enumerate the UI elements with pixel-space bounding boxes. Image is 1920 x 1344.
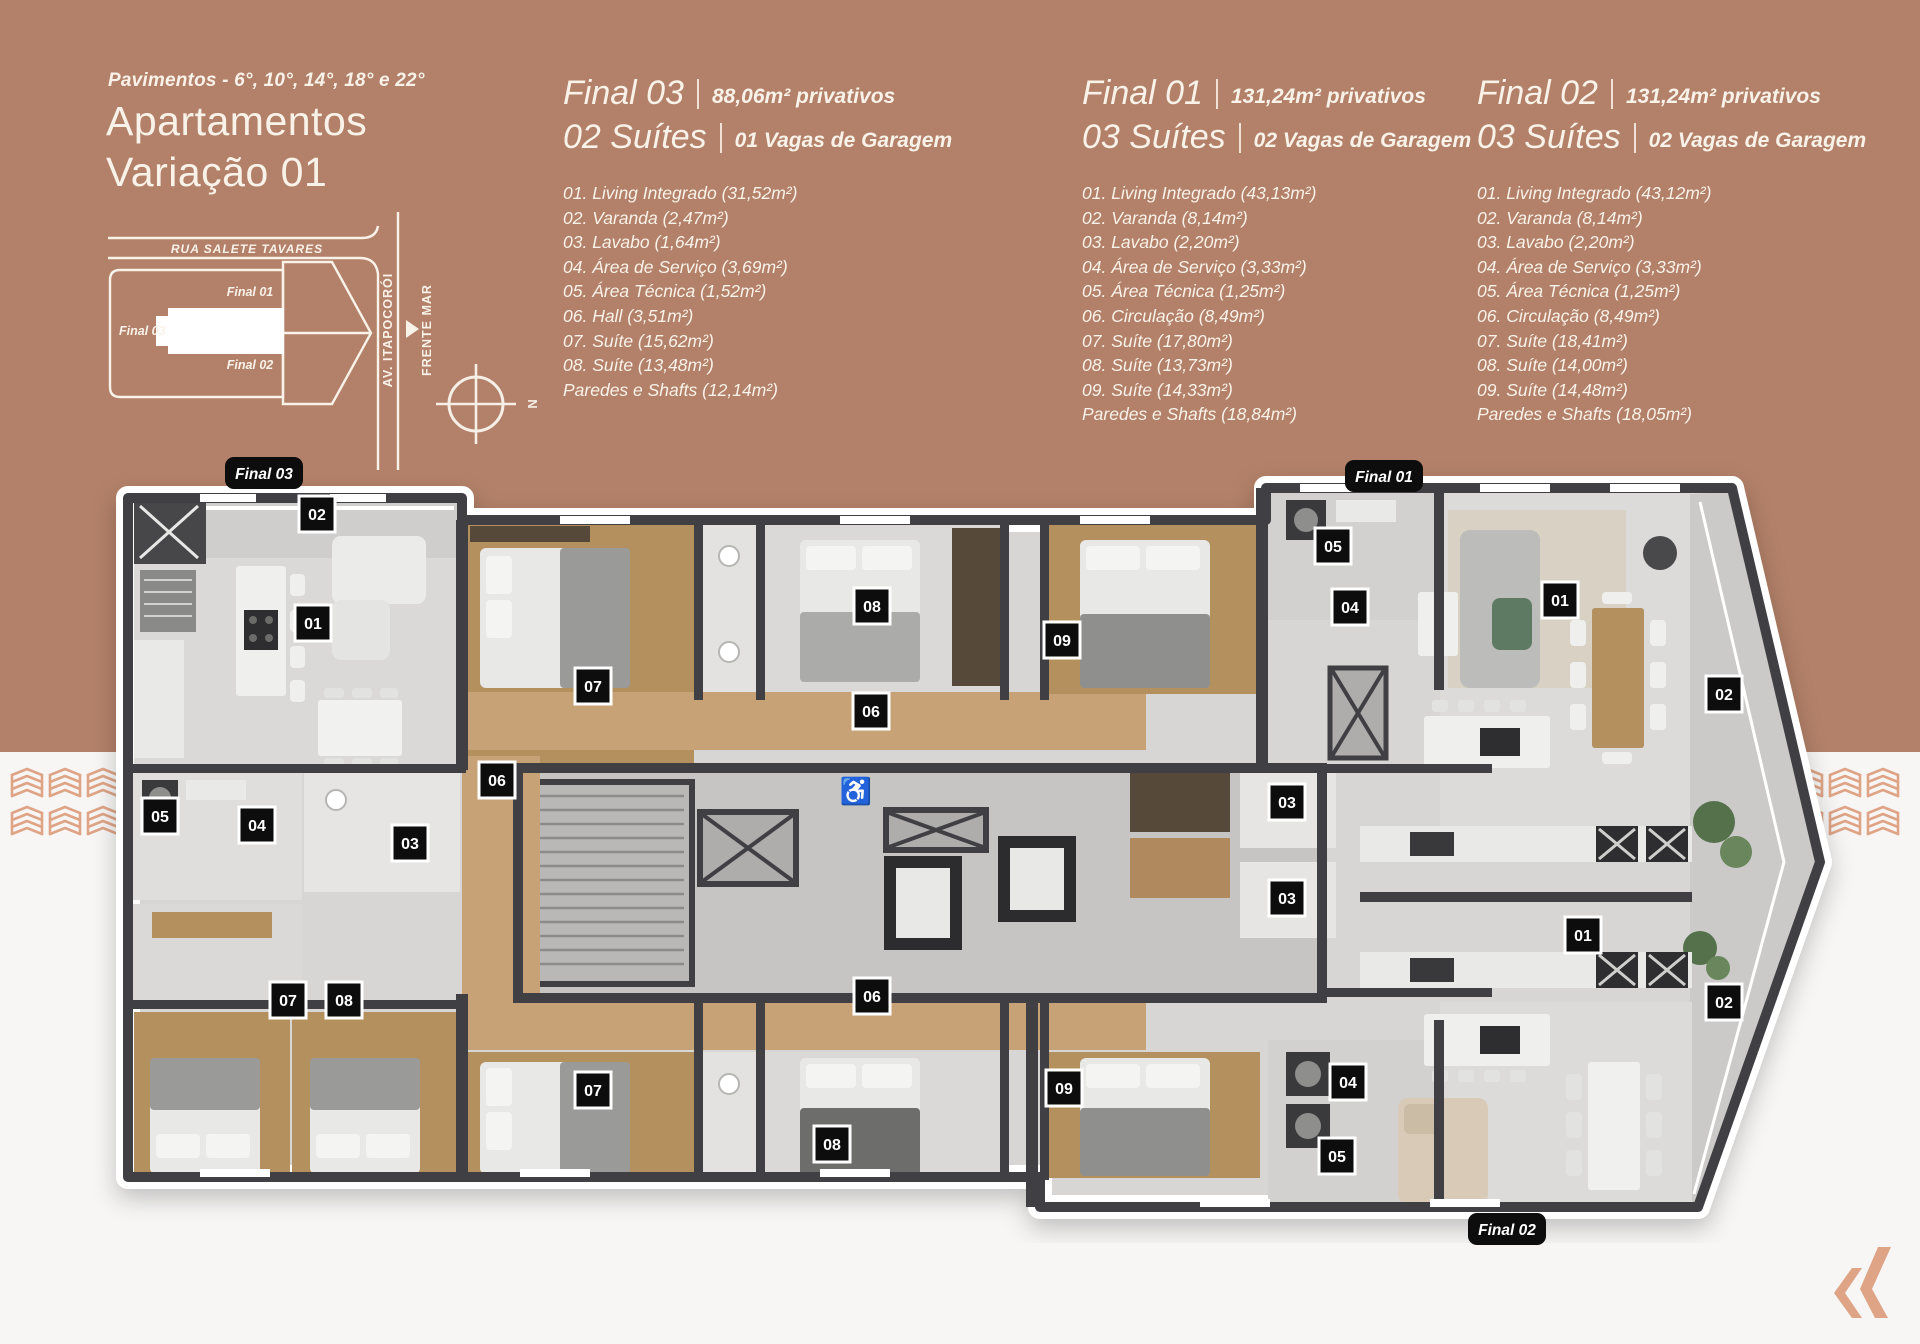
sofa	[1460, 530, 1540, 688]
svg-text:Final 02: Final 02	[1478, 1222, 1536, 1239]
elevator-icon	[884, 856, 962, 950]
page: RUA SALETE TAVARES Final 01 Final 03 Fin…	[0, 0, 1920, 1344]
unit-area: 88,06m² privativos	[712, 79, 895, 109]
svg-text:01: 01	[304, 616, 322, 633]
bed	[310, 1058, 420, 1174]
room-tag: 04	[1330, 1064, 1366, 1100]
unit-column-final01: Final 01 131,24m² privativos 03 Suítes 0…	[1082, 74, 1422, 427]
room-tag: 09	[1044, 622, 1080, 658]
divider	[1216, 79, 1218, 109]
bed	[1080, 1058, 1210, 1176]
ornament-pattern-left	[12, 769, 118, 834]
dining-table	[318, 688, 402, 768]
room-tag: 05	[1315, 528, 1351, 564]
svg-text:09: 09	[1053, 633, 1071, 650]
divider	[1239, 123, 1241, 153]
unit-tag: Final 03	[225, 457, 303, 489]
brand-logo	[1834, 1247, 1891, 1318]
dining-table	[1566, 1062, 1662, 1190]
svg-text:08: 08	[823, 1137, 841, 1154]
page-title: Apartamentos Variação 01	[106, 96, 367, 198]
unit-parking: 02 Vagas de Garagem	[1649, 123, 1867, 153]
unit-name: Final 02	[1477, 74, 1598, 113]
elevator-icon	[886, 810, 986, 850]
svg-text:06: 06	[488, 773, 506, 790]
unit-area-item: 04. Área de Serviço (3,69m²)	[563, 255, 903, 280]
unit-suites: 03 Suítes	[1477, 118, 1621, 157]
unit-area-item: 08. Suíte (14,00m²)	[1477, 353, 1817, 378]
map-final-02-label: Final 02	[227, 358, 274, 372]
unit-area-item: 07. Suíte (17,80m²)	[1082, 329, 1422, 354]
unit-area-item: Paredes e Shafts (12,14m²)	[563, 378, 903, 403]
room-tag: 06	[854, 978, 890, 1014]
unit-area-item: 01. Living Integrado (31,52m²)	[563, 181, 903, 206]
divider	[1634, 123, 1636, 153]
svg-text:07: 07	[584, 1083, 602, 1100]
unit-areas-list: 01. Living Integrado (31,52m²)02. Varand…	[563, 181, 903, 402]
kitchen-counter	[1360, 952, 1692, 988]
map-final-03-label: Final 03	[119, 324, 166, 338]
unit-area-item: 05. Área Técnica (1,25m²)	[1477, 279, 1817, 304]
unit-column-final02: Final 02 131,24m² privativos 03 Suítes 0…	[1477, 74, 1817, 427]
unit-area-item: 02. Varanda (8,14m²)	[1082, 206, 1422, 231]
svg-text:04: 04	[248, 818, 266, 835]
svg-text:04: 04	[1339, 1075, 1357, 1092]
room-tag: 02	[299, 496, 335, 532]
unit-tag: Final 02	[1468, 1213, 1546, 1245]
room-tag: 04	[239, 807, 275, 843]
bed	[150, 1058, 260, 1174]
page-title-line1: Apartamentos	[106, 96, 367, 147]
unit-area: 131,24m² privativos	[1231, 79, 1426, 109]
side-table	[1643, 536, 1677, 570]
svg-text:07: 07	[279, 993, 297, 1010]
svg-text:07: 07	[584, 679, 602, 696]
unit-column-final03: Final 03 88,06m² privativos 02 Suítes 01…	[563, 74, 903, 402]
room-tag: 07	[575, 668, 611, 704]
unit-area-item: 06. Circulação (8,49m²)	[1477, 304, 1817, 329]
page-title-line2: Variação 01	[106, 147, 367, 198]
corridor	[466, 692, 1146, 750]
svg-text:04: 04	[1341, 600, 1359, 617]
unit-area-item: 01. Living Integrado (43,13m²)	[1082, 181, 1422, 206]
unit-area-item: 03. Lavabo (2,20m²)	[1082, 230, 1422, 255]
elevator-icon	[700, 812, 796, 884]
unit-area-item: 07. Suíte (18,41m²)	[1477, 329, 1817, 354]
svg-text:01: 01	[1551, 593, 1569, 610]
svg-text:03: 03	[1278, 795, 1296, 812]
elevator-icon	[998, 836, 1076, 922]
room-tag: 02	[1706, 984, 1742, 1020]
bathroom	[304, 772, 460, 892]
unit-area-item: 01. Living Integrado (43,12m²)	[1477, 181, 1817, 206]
building-plan: ♿	[128, 457, 1820, 1245]
unit-area-item: 04. Área de Serviço (3,33m²)	[1477, 255, 1817, 280]
unit-area-item: Paredes e Shafts (18,05m²)	[1477, 402, 1817, 427]
room-tag: 05	[1319, 1138, 1355, 1174]
bed	[1080, 540, 1210, 688]
room-tag: 03	[392, 825, 428, 861]
divider	[720, 123, 722, 153]
room-tag: 06	[853, 693, 889, 729]
svg-text:03: 03	[401, 836, 419, 853]
unit-area-item: 03. Lavabo (1,64m²)	[563, 230, 903, 255]
unit-areas-list: 01. Living Integrado (43,13m²)02. Varand…	[1082, 181, 1422, 427]
unit-area-item: Paredes e Shafts (18,84m²)	[1082, 402, 1422, 427]
sea-arrow-icon	[406, 320, 419, 338]
unit-suites: 03 Suítes	[1082, 118, 1226, 157]
unit-parking: 01 Vagas de Garagem	[735, 123, 953, 153]
svg-text:09: 09	[1055, 1081, 1073, 1098]
room-tag: 05	[142, 798, 178, 834]
room-tag: 04	[1332, 589, 1368, 625]
svg-text:05: 05	[1328, 1149, 1346, 1166]
accessibility-icon: ♿	[840, 776, 872, 806]
svg-text:Final 01: Final 01	[1355, 469, 1413, 486]
north-label: N	[525, 399, 540, 408]
unit-area-item: 07. Suíte (15,62m²)	[563, 329, 903, 354]
room-tag: 07	[575, 1072, 611, 1108]
stairs	[532, 782, 692, 984]
room-tag: 08	[326, 982, 362, 1018]
unit-area-item: 05. Área Técnica (1,25m²)	[1082, 279, 1422, 304]
unit-area-item: 04. Área de Serviço (3,33m²)	[1082, 255, 1422, 280]
svg-text:08: 08	[863, 599, 881, 616]
unit-area-item: 02. Varanda (2,47m²)	[563, 206, 903, 231]
unit-area-item: 02. Varanda (8,14m²)	[1477, 206, 1817, 231]
room-tag: 01	[295, 605, 331, 641]
svg-text:02: 02	[1715, 995, 1733, 1012]
svg-text:Final 03: Final 03	[235, 466, 293, 483]
bathroom	[700, 1052, 758, 1178]
svg-text:02: 02	[1715, 687, 1733, 704]
floors-label: Pavimentos - 6°, 10°, 14°, 18° e 22°	[108, 70, 425, 92]
unit-areas-list: 01. Living Integrado (43,12m²)02. Varand…	[1477, 181, 1817, 427]
svg-text:03: 03	[1278, 891, 1296, 908]
unit-name: Final 01	[1082, 74, 1203, 113]
map-final-01-label: Final 01	[227, 285, 274, 299]
room-tag: 06	[479, 762, 515, 798]
room-tag: 01	[1542, 582, 1578, 618]
unit-area-item: 06. Hall (3,51m²)	[563, 304, 903, 329]
unit-tag: Final 01	[1345, 460, 1423, 492]
svg-text:06: 06	[863, 989, 881, 1006]
svg-text:05: 05	[1324, 539, 1342, 556]
room-tag: 03	[1269, 784, 1305, 820]
room-tag: 09	[1046, 1070, 1082, 1106]
elevator-icon	[1330, 668, 1386, 758]
svg-text:02: 02	[308, 507, 326, 524]
unit-area-item: 08. Suíte (13,73m²)	[1082, 353, 1422, 378]
svg-text:06: 06	[862, 704, 880, 721]
room-tag: 08	[854, 588, 890, 624]
room-tag: 07	[270, 982, 306, 1018]
unit-area-item: 06. Circulação (8,49m²)	[1082, 304, 1422, 329]
room-tag: 01	[1565, 917, 1601, 953]
unit-area-item: 09. Suíte (14,33m²)	[1082, 378, 1422, 403]
sea-label: FRENTE MAR	[420, 284, 434, 376]
unit-area-item: 05. Área Técnica (1,52m²)	[563, 279, 903, 304]
room-tag: 03	[1269, 880, 1305, 916]
unit-area: 131,24m² privativos	[1626, 79, 1821, 109]
svg-text:05: 05	[151, 809, 169, 826]
room-tag: 08	[814, 1126, 850, 1162]
unit-area-item: 09. Suíte (14,48m²)	[1477, 378, 1817, 403]
unit-area-item: 03. Lavabo (2,20m²)	[1477, 230, 1817, 255]
kitchen-counter	[1360, 826, 1692, 862]
avenue-name: AV. ITAPOCORÓI	[380, 273, 395, 387]
svg-text:01: 01	[1574, 928, 1592, 945]
compass	[436, 364, 516, 444]
street-name: RUA SALETE TAVARES	[171, 242, 323, 256]
unit-area-item: 08. Suíte (13,48m²)	[563, 353, 903, 378]
unit-name: Final 03	[563, 74, 684, 113]
divider	[1611, 79, 1613, 109]
room-tag: 02	[1706, 676, 1742, 712]
unit-suites: 02 Suítes	[563, 118, 707, 157]
unit-parking: 02 Vagas de Garagem	[1254, 123, 1472, 153]
svg-text:08: 08	[335, 993, 353, 1010]
divider	[697, 79, 699, 109]
